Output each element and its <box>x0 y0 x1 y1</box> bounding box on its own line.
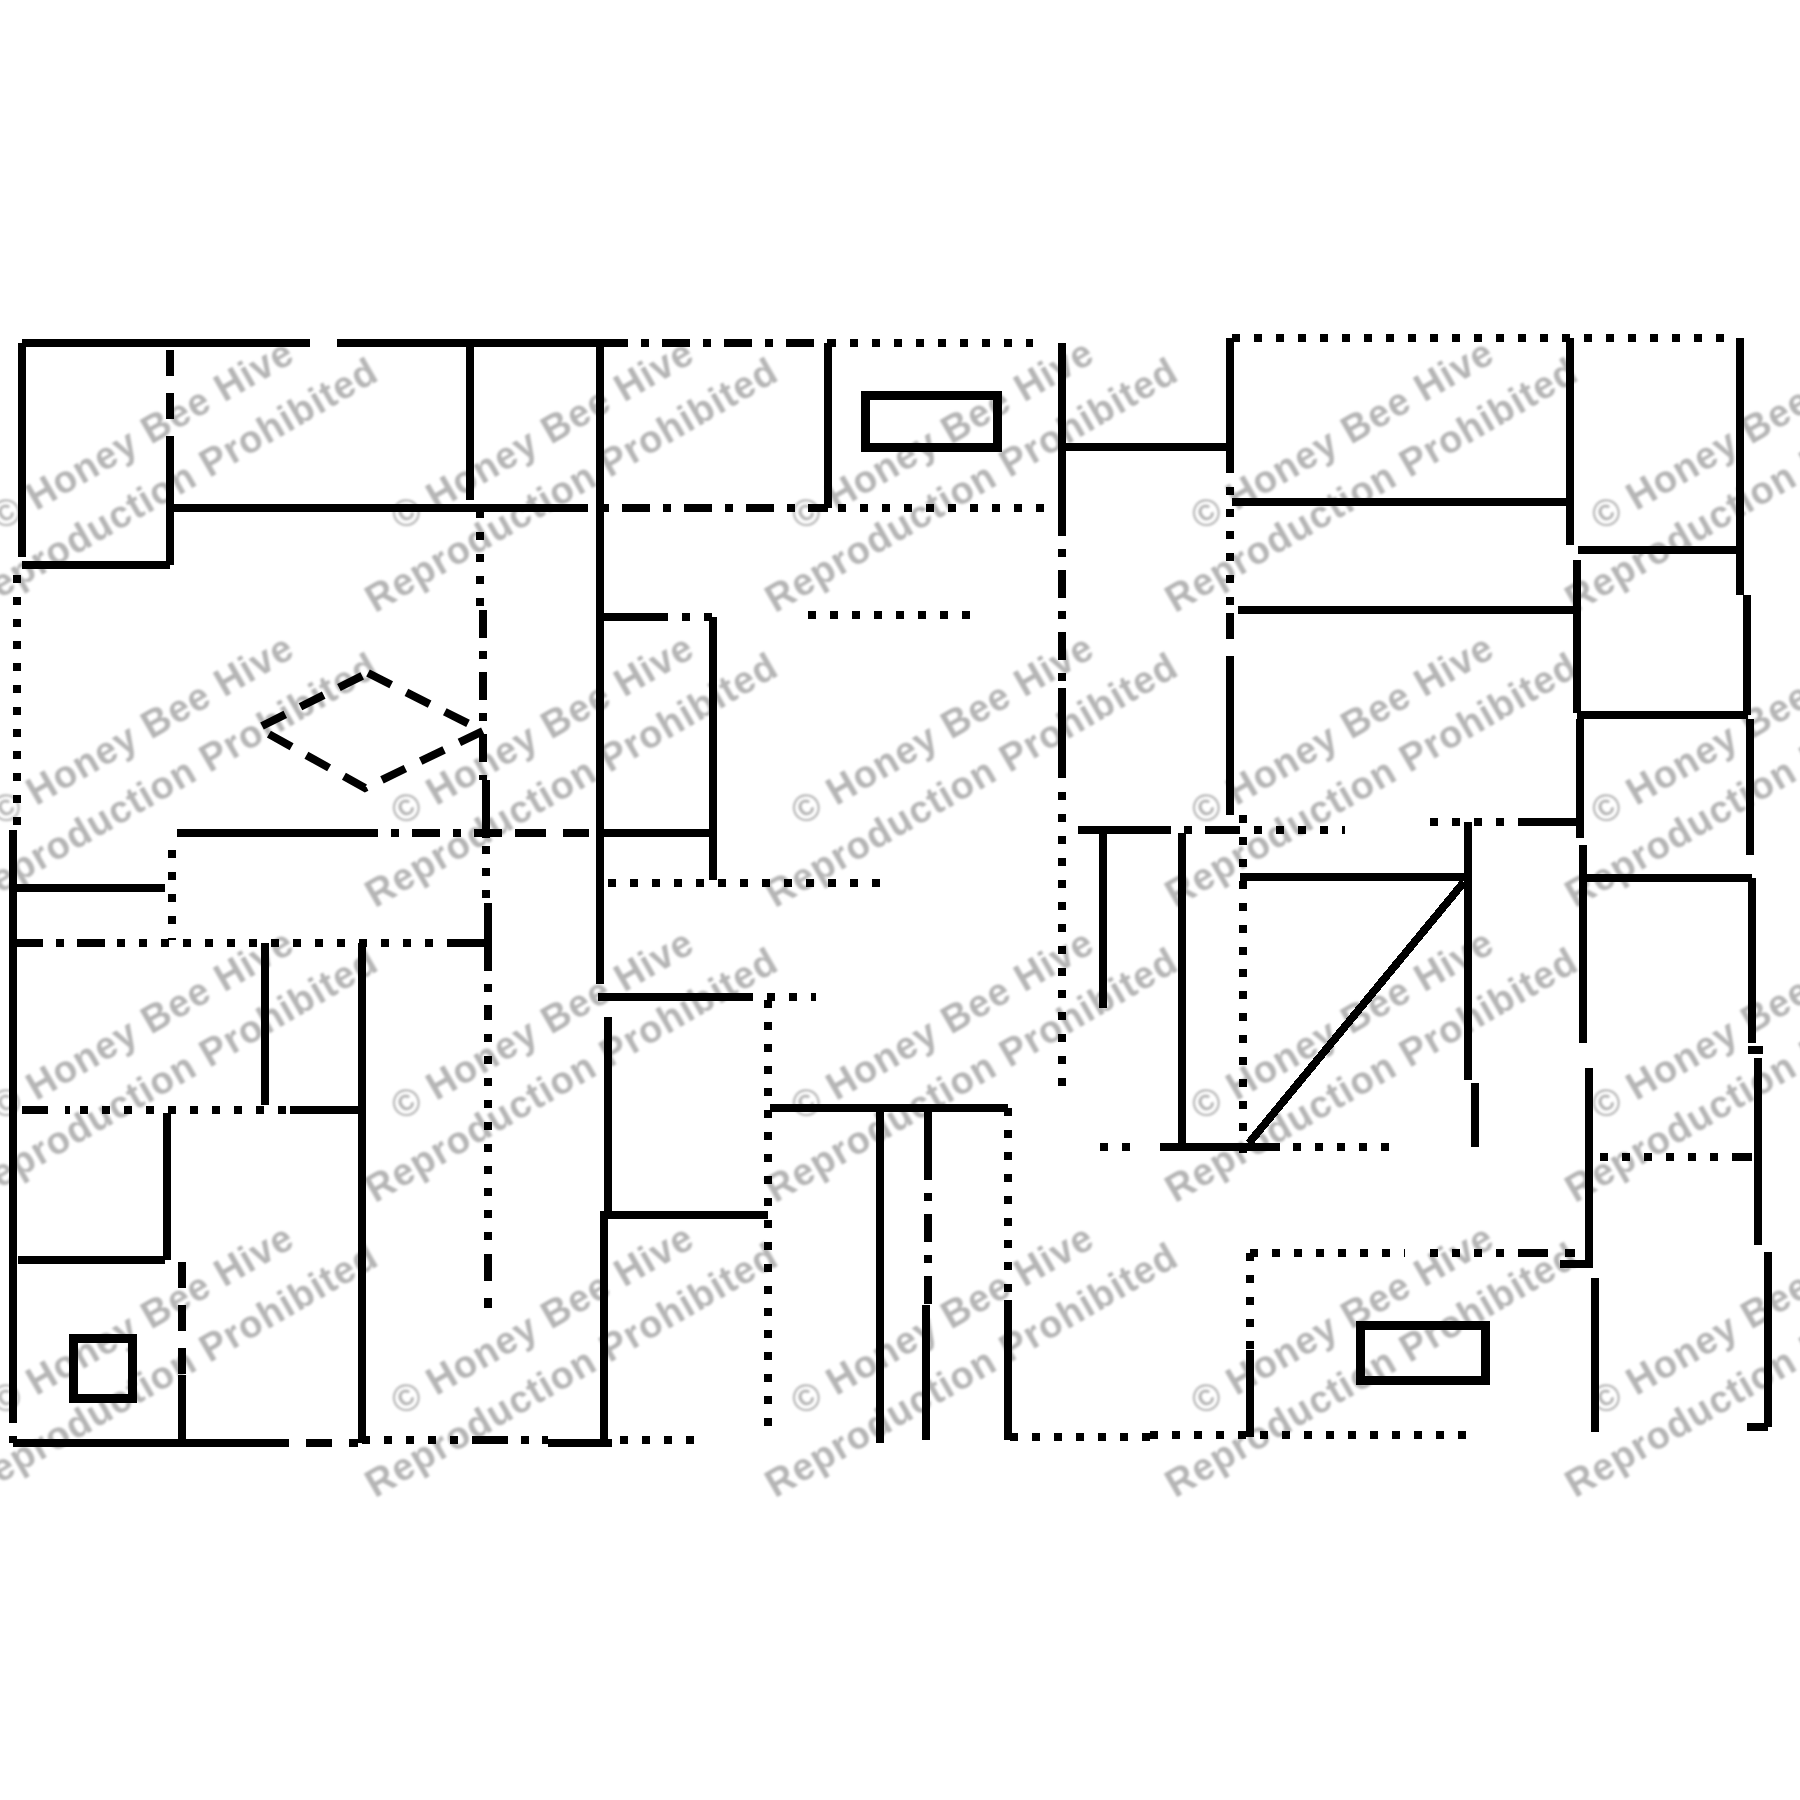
watermark-instance: © Honey Bee HiveReproduction Prohibited <box>329 299 785 620</box>
watermark-instance: © Honey Bee HiveReproduction Prohibited <box>0 1184 385 1505</box>
pattern-canvas: © Honey Bee HiveReproduction Prohibited©… <box>0 0 1800 1800</box>
watermark-instance: © Honey Bee HiveReproduction Prohibited <box>1129 299 1585 620</box>
pattern-sheet: © Honey Bee HiveReproduction Prohibited©… <box>0 0 1800 1800</box>
watermark-layer: © Honey Bee HiveReproduction Prohibited©… <box>0 299 1800 1505</box>
watermark-instance: © Honey Bee HiveReproduction Prohibited <box>729 1184 1185 1505</box>
watermark-instance: © Honey Bee HiveReproduction Prohibited <box>0 889 385 1210</box>
watermark-instance: © Honey Bee HiveReproduction Prohibited <box>729 299 1185 620</box>
watermark-instance: © Honey Bee HiveReproduction Prohibited <box>1529 594 1800 915</box>
watermark-instance: © Honey Bee HiveReproduction Prohibited <box>729 594 1185 915</box>
watermark-instance: © Honey Bee HiveReproduction Prohibited <box>0 299 385 620</box>
watermark-instance: © Honey Bee HiveReproduction Prohibited <box>0 594 385 915</box>
watermark-instance: © Honey Bee HiveReproduction Prohibited <box>329 889 785 1210</box>
watermark-instance: © Honey Bee HiveReproduction Prohibited <box>1129 889 1585 1210</box>
watermark-instance: © Honey Bee HiveReproduction Prohibited <box>1129 594 1585 915</box>
watermark-instance: © Honey Bee HiveReproduction Prohibited <box>329 1184 785 1505</box>
watermark-instance: © Honey Bee HiveReproduction Prohibited <box>729 889 1185 1210</box>
